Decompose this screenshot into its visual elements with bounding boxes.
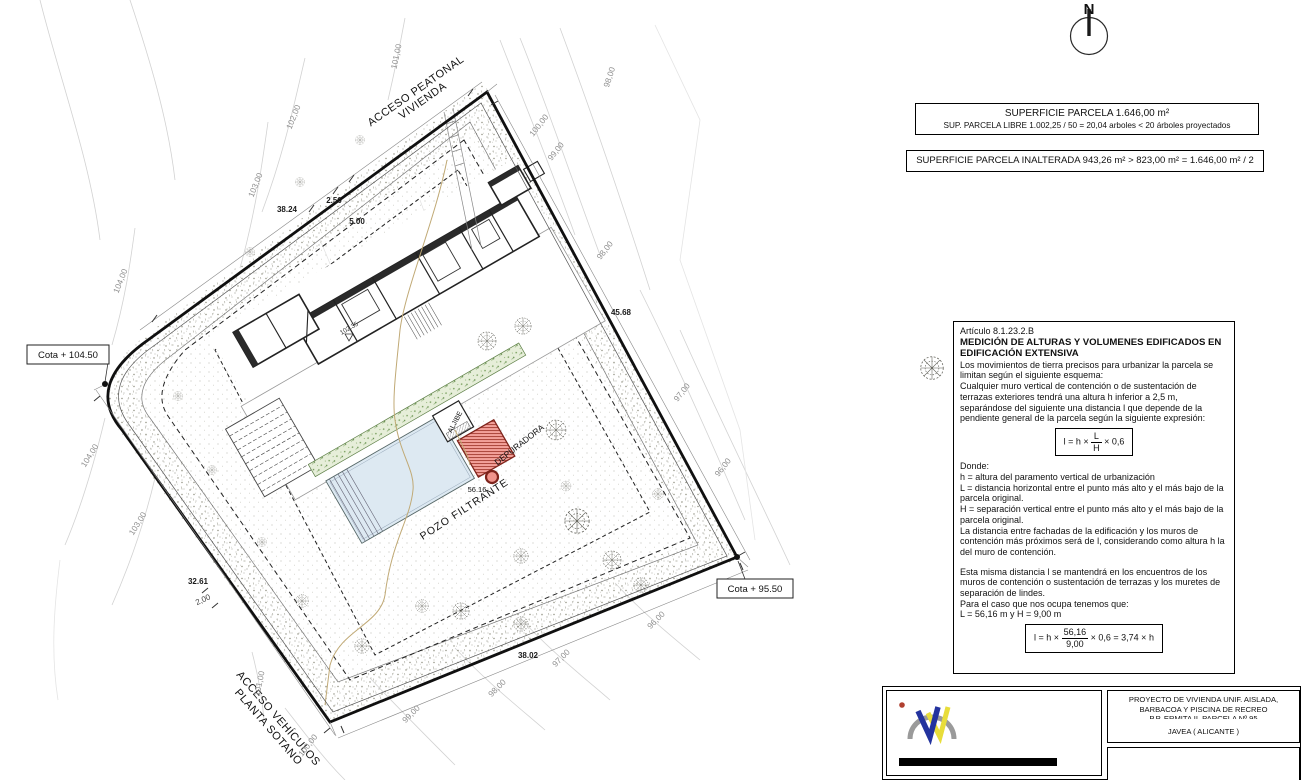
formula-2: l = h × 56,169,00 × 0,6 = 3,74 × h [960, 624, 1228, 652]
contour-98-top: 98,00 [601, 65, 617, 88]
project-description-box: PROYECTO DE VIVIENDA UNIF. AISLADA, BARB… [1107, 690, 1300, 743]
article-p3: La distancia entre fachadas de la edific… [960, 526, 1228, 558]
formula2-den: 9,00 [1062, 639, 1089, 650]
north-label: N [1084, 1, 1095, 18]
surface-parcel-line2: SUP. PARCELA LIBRE 1.002,25 / 50 = 20,04… [920, 120, 1254, 131]
contour-101-top: 101,00 [389, 43, 404, 70]
formula1-num: L [1091, 431, 1102, 443]
article-donde: Donde: [960, 461, 1228, 472]
formula-1: l = h × LH × 0,6 [960, 428, 1228, 456]
article-p6: L = 56,16 m y H = 9,00 m [960, 609, 1228, 620]
dim-45-68: 45.68 [611, 308, 632, 317]
formula1-lhs: l = h × [1064, 437, 1089, 447]
contour-103: 103,00 [246, 171, 265, 199]
surface-parcel-line1: SUPERFICIE PARCELA 1.646,00 m² [920, 107, 1254, 120]
project-line3-clipped: P.P. ERMITA II. PARCELA Nº 95 [1108, 714, 1299, 719]
contour-99-top: 99,00 [545, 140, 566, 163]
article-p5: Para el caso que nos ocupa tenemos que: [960, 599, 1228, 610]
formula1-den: H [1091, 443, 1102, 454]
contour-97-right: 97,00 [671, 381, 692, 404]
dim-38-24: 38.24 [277, 205, 298, 214]
contour-96-right: 96,00 [712, 456, 733, 479]
dim-2-50: 2.50 [326, 196, 342, 205]
contour-96-bottom: 96,00 [645, 609, 667, 631]
contour-98-right: 98,00 [594, 239, 615, 262]
article-ref: Artículo 8.1.23.2.B [960, 326, 1228, 337]
dim-2-00: 2,00 [194, 592, 212, 607]
formula2-num: 56,16 [1062, 627, 1089, 639]
dist-56-label: 56.16 [468, 485, 487, 494]
north-arrow: N [1071, 1, 1108, 55]
title-block-logo-cell [886, 690, 1102, 776]
contour-104-bottom: 104,00 [78, 442, 100, 469]
dim-32-61: 32.61 [188, 577, 209, 586]
dim-38-02: 38.02 [518, 651, 539, 660]
surface-parcel-box: SUPERFICIE PARCELA 1.646,00 m² SUP. PARC… [915, 103, 1259, 135]
article-title-line1: MEDICIÓN DE ALTURAS Y VOLUMENES EDIFICAD… [960, 337, 1228, 349]
article-def-hh: H = separación vertical entre el punto m… [960, 504, 1228, 525]
article-p2: Cualquier muro vertical de contención o … [960, 381, 1228, 424]
project-line2: BARBACOA Y PISCINA DE RECREO [1108, 705, 1299, 715]
article-box: Artículo 8.1.23.2.B MEDICIÓN DE ALTURAS … [953, 321, 1235, 674]
company-logo [887, 695, 977, 759]
formula2-lhs: l = h × [1034, 633, 1059, 643]
logo-red-dot [899, 702, 905, 708]
formula2-rhs: × 0,6 = 3,74 × h [1091, 633, 1154, 643]
article-def-h: h = altura del paramento vertical de urb… [960, 472, 1228, 483]
surface-unaltered-line1: SUPERFICIE PARCELA INALTERADA 943,26 m² … [911, 154, 1259, 168]
formula1-rhs: × 0,6 [1104, 437, 1124, 447]
contour-99-bottom: 99,00 [400, 703, 422, 725]
project-location: JAVEA ( ALICANTE ) [1108, 727, 1299, 737]
contour-100-top: 100,00 [527, 112, 551, 138]
article-p1: Los movimientos de tierra precisos para … [960, 360, 1228, 381]
article-p4: Esta misma distancia l se mantendrá en l… [960, 567, 1228, 599]
article-title-line2: EDIFICACIÓN EXTENSIVA [960, 348, 1228, 360]
title-block-right-column: PROYECTO DE VIVIENDA UNIF. AISLADA, BARB… [1105, 687, 1301, 780]
surface-unaltered-box: SUPERFICIE PARCELA INALTERADA 943,26 m² … [906, 150, 1264, 172]
redacted-bar [899, 758, 1057, 766]
contour-102: 102,00 [284, 103, 303, 131]
dim-5-00: 5.00 [349, 217, 365, 226]
cota-high-label: Cota + 104.50 [38, 350, 98, 361]
title-block-empty-box [1107, 747, 1300, 780]
cota-high-marker: Cota + 104.50 [27, 345, 109, 387]
project-line1: PROYECTO DE VIVIENDA UNIF. AISLADA, [1108, 695, 1299, 705]
drawing-sheet: Cota + 104.50 Cota + 95.50 102.35 ACCESO… [0, 0, 1301, 780]
contour-103-bottom: 103,00 [126, 510, 148, 537]
title-block: PROYECTO DE VIVIENDA UNIF. AISLADA, BARB… [882, 686, 1301, 780]
cota-low-label: Cota + 95.50 [728, 584, 783, 595]
article-def-l: L = distancia horizontal entre el punto … [960, 483, 1228, 504]
